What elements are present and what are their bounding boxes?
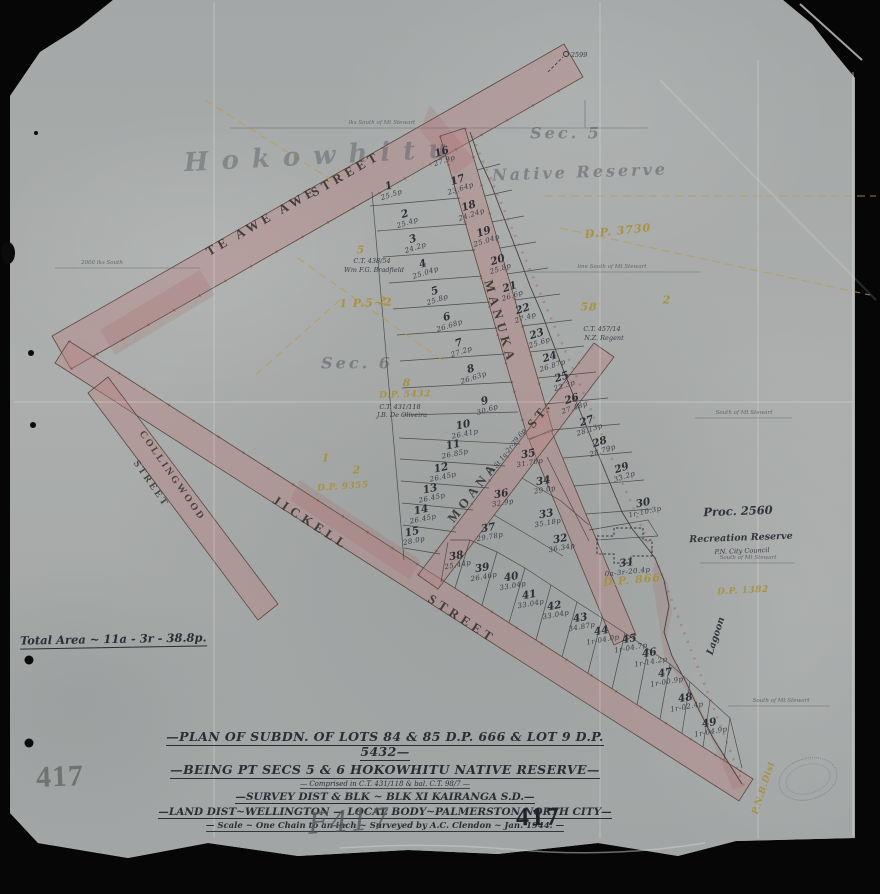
refline-label-3: 2000 lks South — [81, 260, 123, 266]
lot-34: 3429.0p — [532, 474, 557, 496]
lot-13: 1326.45p — [416, 481, 446, 504]
lot-5: 525.8p — [423, 283, 450, 307]
pencil-file-number: F417 — [307, 801, 393, 841]
lot-20: 2025.8p — [486, 252, 513, 276]
title-line-2: —BEING PT SECS 5 & 6 HOKOWHITU NATIVE RE… — [170, 762, 600, 779]
lot-22: 2227.4p — [511, 301, 538, 325]
lot-38: 3825.44p — [442, 549, 472, 571]
yellow-8: 8 — [403, 377, 412, 390]
script-sec-6: Sec. 6 — [321, 354, 393, 373]
refline-label-5: South of Mt Stewart — [720, 555, 777, 561]
lot-6: 626.68p — [432, 308, 463, 333]
lot-27: 2728.13p — [572, 412, 603, 437]
lot-7: 727.2p — [447, 335, 474, 359]
note-nz-regent: N.Z. Regent — [584, 334, 623, 342]
note-de-oliveira: J.B. De Oliveira — [377, 411, 427, 419]
refline-label-4: South of Mt Stewart — [716, 410, 773, 416]
lot-33: 3335.18p — [532, 507, 562, 529]
lot-42: 4233.04p — [540, 599, 570, 621]
yellow-2a: 2 — [353, 464, 362, 477]
lot-3: 324.2p — [401, 231, 428, 255]
note-ct-431: C.T. 431/118 — [379, 403, 420, 411]
survey-plan-sheet: Total Area ~ 11a - 3r - 38.8p. —PLAN OF … — [0, 0, 880, 894]
lot-21: 2126.6p — [498, 279, 525, 303]
lot-40: 4033.04p — [497, 570, 527, 592]
street-te-awe-awe: TE AWE AWE — [203, 182, 321, 259]
title-line-1: —PLAN OF SUBDN. OF LOTS 84 & 85 D.P. 666… — [166, 729, 603, 761]
lot-11: 1126.85p — [439, 437, 469, 460]
script-hokowhitu: Hokowhitu — [183, 134, 461, 178]
yellow-2c: 2 — [663, 294, 672, 307]
lot-47: 471r-00.9p — [648, 665, 684, 689]
lot-1: 125.5p — [377, 178, 404, 202]
yellow-58: 58 — [580, 301, 597, 314]
lot-23: 2325.6p — [525, 326, 552, 350]
sheet-number-stamp: 417 — [35, 759, 84, 795]
lot-4: 425.04p — [408, 255, 439, 280]
note-lagoon: Lagoon — [705, 616, 728, 657]
lot-14: 1426.45p — [407, 502, 437, 525]
refline-label-1: lks South of Mt Stewart — [349, 120, 416, 126]
lot-39: 3926.46p — [468, 561, 498, 583]
street-jickell: JICKELL — [269, 492, 352, 554]
total-area-note: Total Area ~ 11a - 3r - 38.8p. — [20, 630, 207, 649]
lot-48: 481r-02.4p — [668, 690, 704, 714]
lot-26: 2627.48p — [557, 390, 588, 415]
annotation-layer: Total Area ~ 11a - 3r - 38.8p. —PLAN OF … — [0, 0, 880, 894]
note-ct-438: C.T. 438/54 — [353, 257, 390, 265]
oval-stamp — [773, 751, 842, 808]
ink-sheet-number: 417 — [516, 802, 562, 833]
lot-15: 1528.0p — [400, 525, 425, 547]
dp-5432: D.P. 5432 — [379, 389, 431, 401]
lot-37: 3729.78p — [474, 521, 504, 543]
lot-25: 2522.3p — [550, 369, 577, 393]
script-native-reserve: Native Reserve — [492, 159, 669, 184]
lot-12: 1226.45p — [427, 460, 457, 483]
refline-label-6: South of Mt Stewart — [753, 698, 810, 704]
lot-19: 1925.04p — [469, 223, 500, 248]
note-bradfield: Wm F.G. Bradfield — [344, 266, 404, 274]
dp-1382: D.P. 1382 — [717, 585, 769, 598]
title-line-3: — Comprised in C.T. 431/118 & bal. C.T. … — [300, 780, 470, 789]
note-recreation-reserve: Recreation Reserve — [689, 531, 793, 546]
street-moana-2: ST. — [524, 397, 556, 432]
dp-9355: D.P. 9355 — [317, 480, 369, 494]
yellow-5: 5 — [357, 244, 366, 257]
peg-2599: 2599 — [571, 51, 588, 59]
refline-label-2: line South of Mt Stewart — [578, 264, 647, 270]
script-sec-5: Sec. 5 — [530, 124, 602, 143]
yellow-pnbd: P.N.B.Dist — [751, 760, 778, 816]
lot-32: 3236.34p — [546, 532, 576, 554]
lot-36: 3632.9p — [490, 487, 515, 509]
lot-9: 930.6p — [473, 393, 500, 417]
note-ct-457: C.T. 457/14 — [583, 325, 620, 333]
lot-17: 1723.64p — [443, 171, 474, 196]
yellow-2b: 2 — [379, 295, 388, 308]
lot-30: 301r-10.3p — [626, 495, 662, 520]
lot-18: 1824.24p — [454, 197, 485, 222]
lot-35: 3531.70p — [514, 447, 544, 469]
yellow-1: 1 — [322, 452, 331, 465]
street-jickell-2: STREET — [425, 591, 499, 647]
lot-2: 225.4p — [393, 206, 420, 230]
dp-3730: D.P. 3730 — [584, 221, 652, 241]
lot-8: 826.63p — [456, 360, 487, 385]
lot-29: 2933.2p — [610, 460, 637, 484]
note-proc-2560: Proc. 2560 — [703, 503, 773, 519]
lot-28: 2828.79p — [585, 433, 616, 458]
lot-49: 491r-04.9p — [692, 715, 728, 739]
